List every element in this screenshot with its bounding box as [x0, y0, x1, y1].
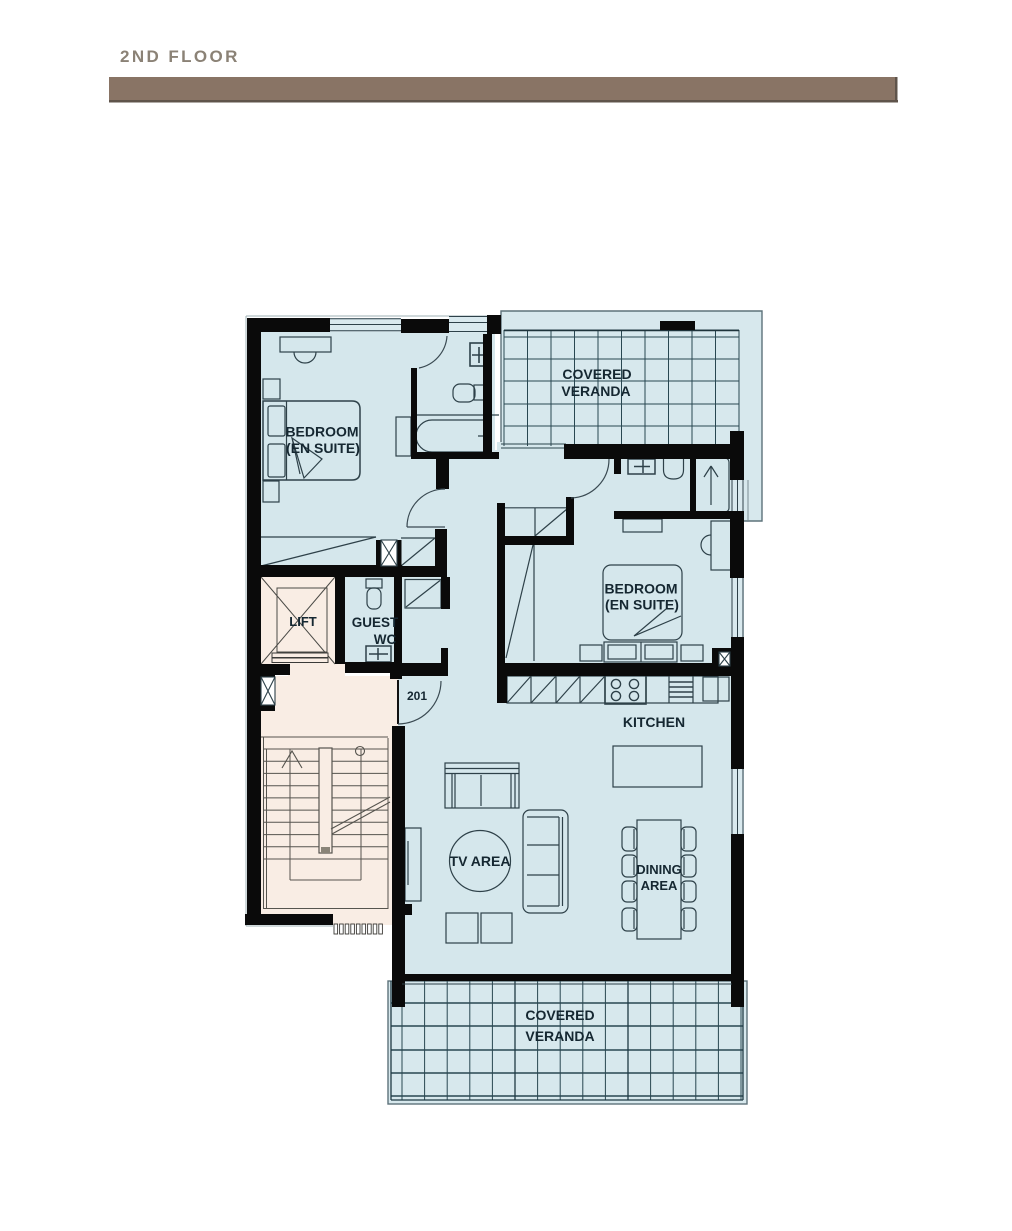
svg-text:BEDROOM: BEDROOM: [604, 581, 677, 597]
svg-text:COVERED: COVERED: [562, 366, 631, 382]
svg-text:(EN SUITE): (EN SUITE): [605, 597, 679, 613]
svg-text:(EN SUITE): (EN SUITE): [286, 440, 360, 456]
svg-text:TV AREA: TV AREA: [450, 853, 511, 869]
svg-text:201: 201: [407, 689, 427, 703]
svg-text:KITCHEN: KITCHEN: [623, 714, 685, 730]
svg-text:AREA: AREA: [641, 878, 678, 893]
svg-text:WC: WC: [374, 632, 397, 647]
svg-text:2ND FLOOR: 2ND FLOOR: [120, 47, 240, 66]
svg-text:GUEST: GUEST: [352, 615, 399, 630]
svg-text:LIFT: LIFT: [289, 614, 316, 629]
svg-text:VERANDA: VERANDA: [561, 383, 630, 399]
svg-text:COVERED: COVERED: [525, 1007, 594, 1023]
svg-text:BEDROOM: BEDROOM: [285, 424, 358, 440]
svg-text:VERANDA: VERANDA: [525, 1028, 594, 1044]
svg-text:DINING: DINING: [636, 862, 682, 877]
